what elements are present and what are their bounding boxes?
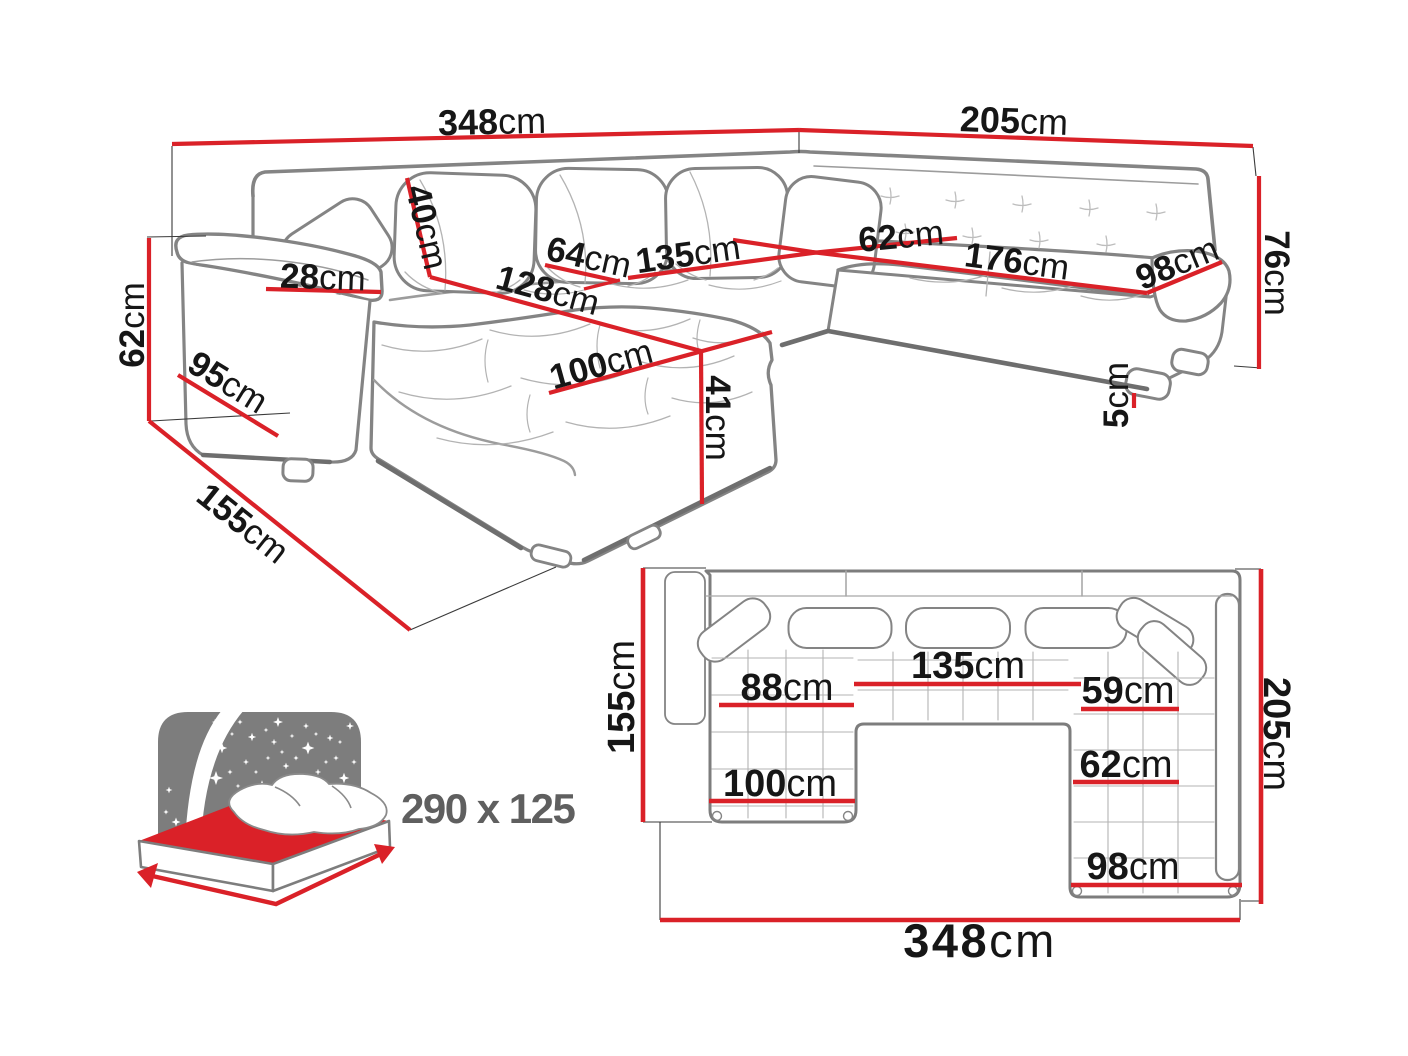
svg-text:59cm: 59cm [1082, 670, 1175, 712]
svg-text:98cm: 98cm [1087, 846, 1180, 888]
svg-text:5cm: 5cm [1097, 362, 1136, 428]
svg-text:205cm: 205cm [1255, 677, 1297, 791]
svg-text:135cm: 135cm [911, 645, 1025, 687]
svg-text:28cm: 28cm [280, 256, 367, 298]
svg-text:348cm: 348cm [903, 914, 1057, 967]
svg-text:88cm: 88cm [741, 667, 834, 709]
svg-text:62cm: 62cm [113, 282, 152, 368]
svg-text:62cm: 62cm [1080, 744, 1173, 786]
svg-text:155cm: 155cm [601, 640, 643, 754]
svg-text:76cm: 76cm [1258, 230, 1297, 316]
svg-text:205cm: 205cm [959, 98, 1068, 143]
svg-text:348cm: 348cm [438, 99, 547, 142]
svg-text:290 x 125: 290 x 125 [401, 785, 575, 832]
svg-text:100cm: 100cm [723, 763, 837, 805]
svg-text:41cm: 41cm [699, 375, 738, 461]
svg-text:62cm: 62cm [857, 212, 946, 259]
